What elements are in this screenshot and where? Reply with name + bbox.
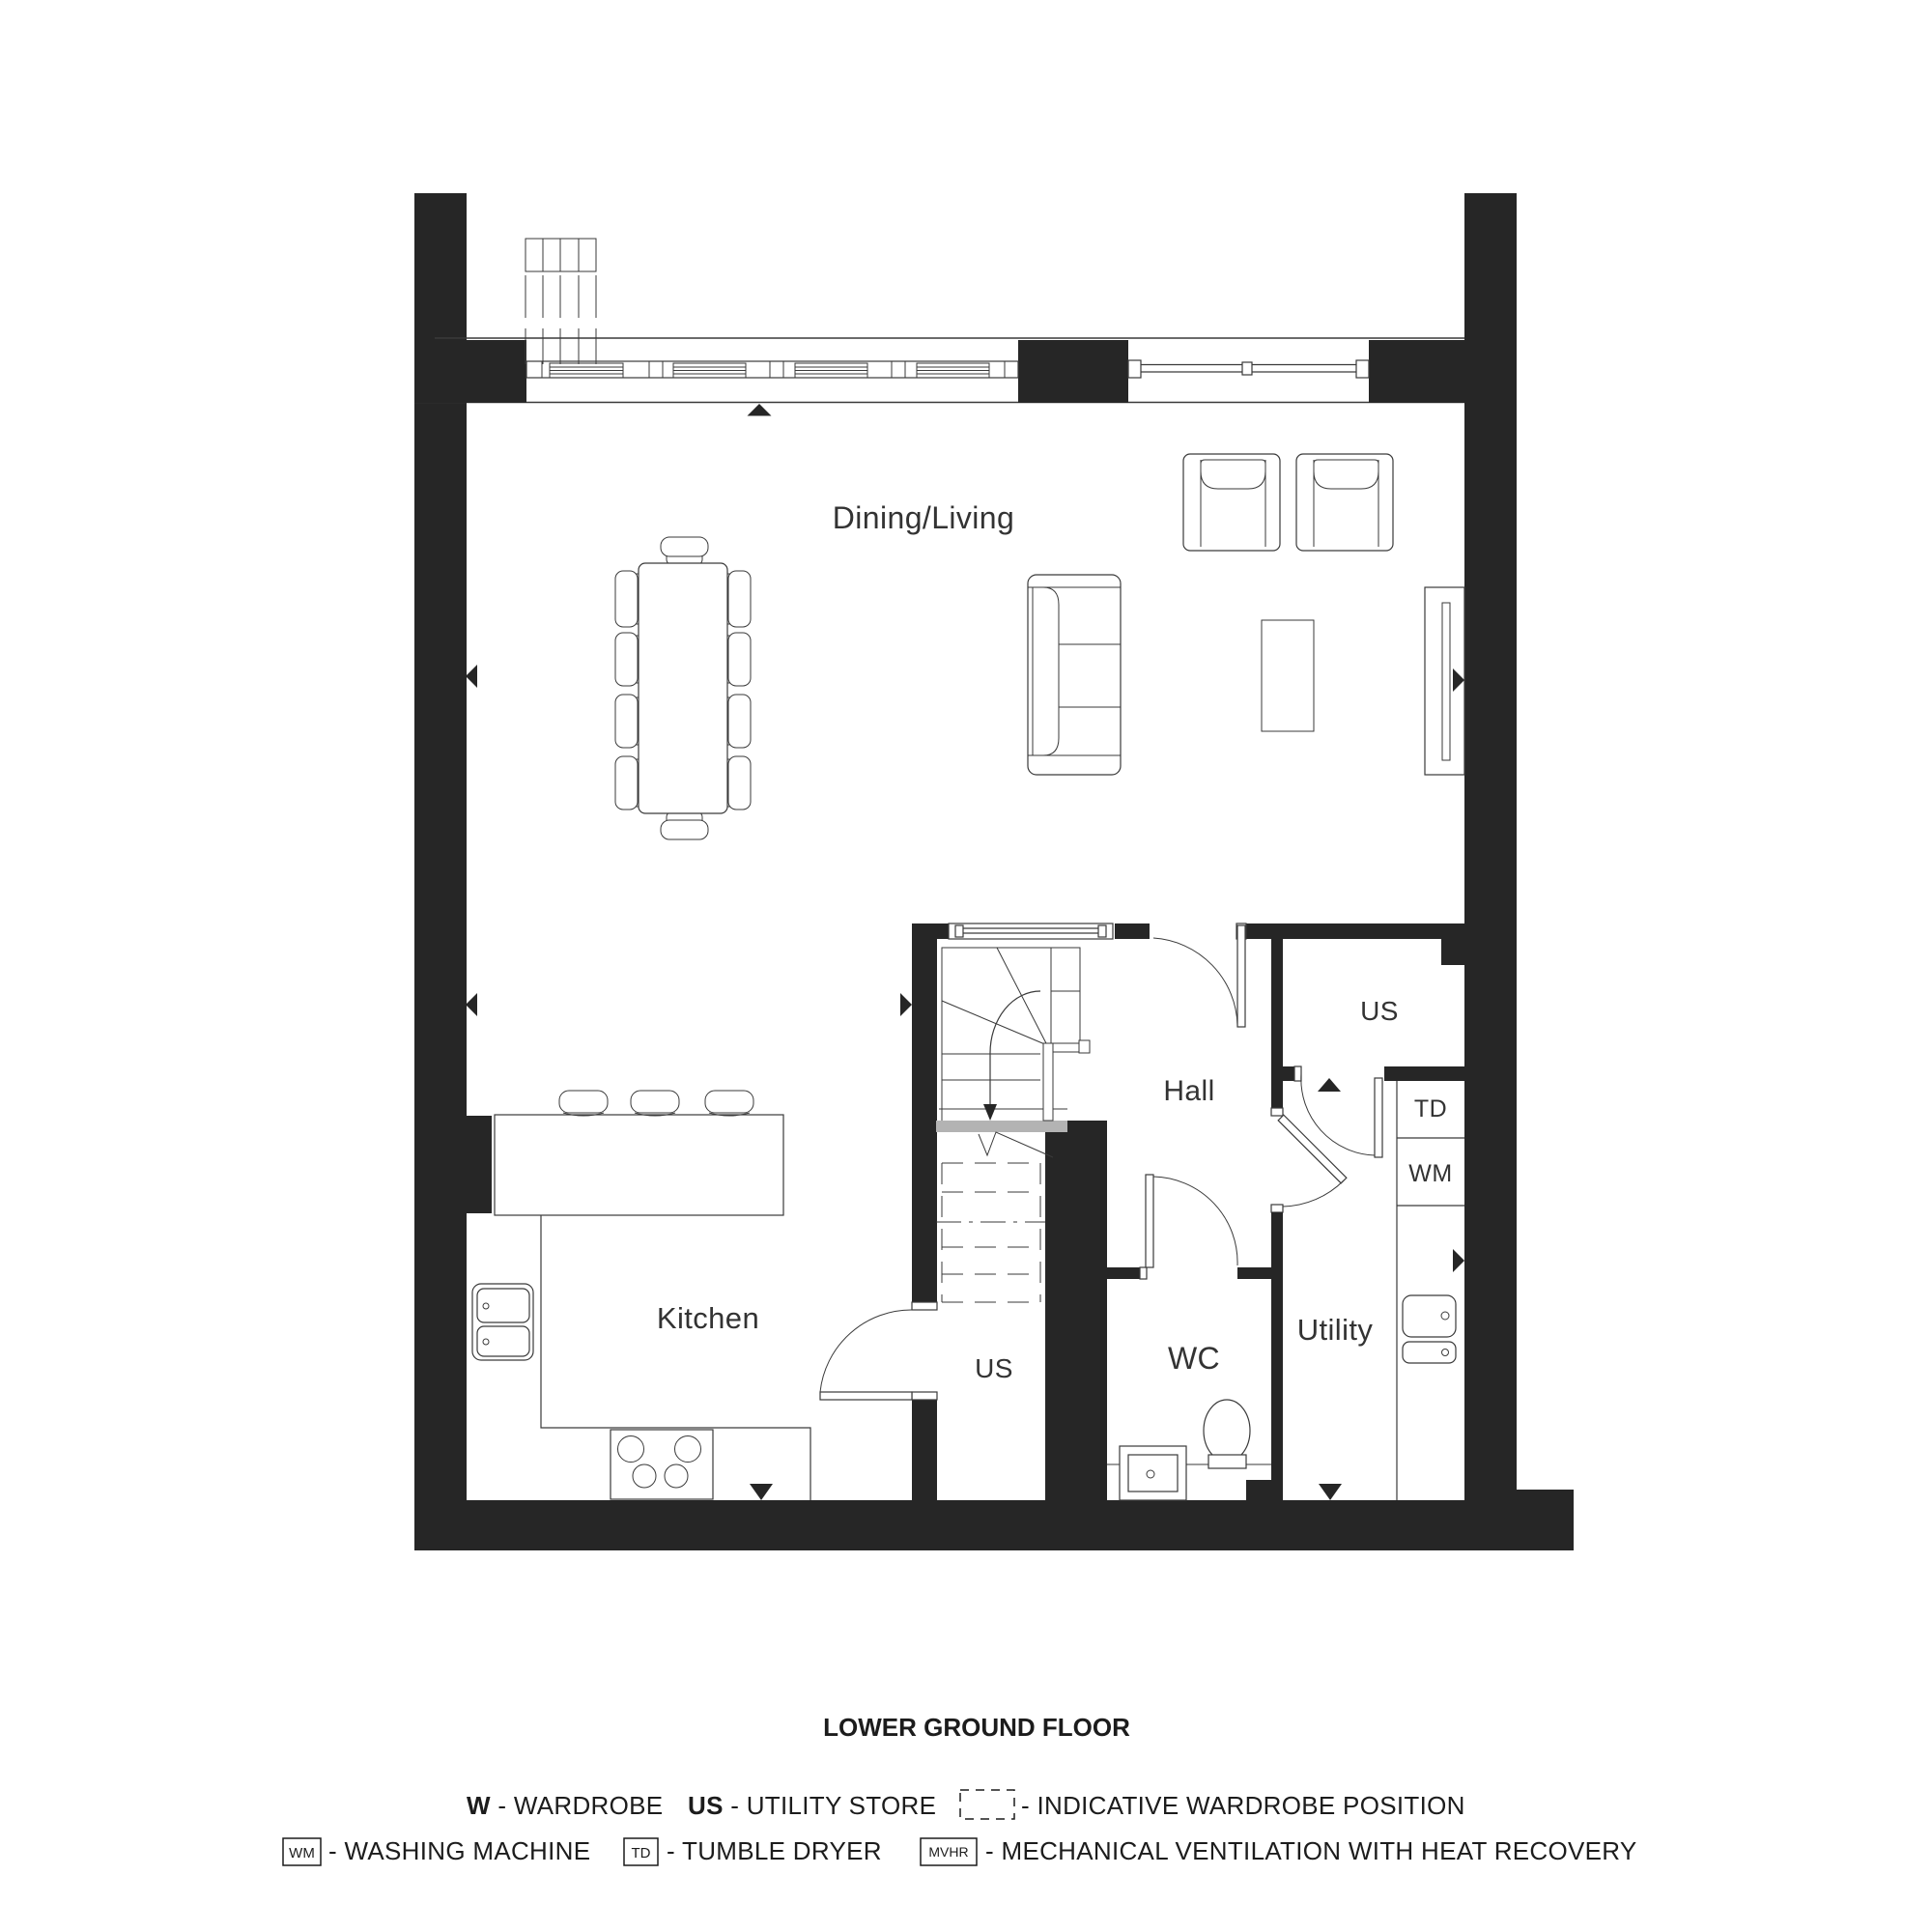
svg-text:WM: WM	[1408, 1160, 1452, 1187]
svg-text:- MECHANICAL VENTILATION WITH: - MECHANICAL VENTILATION WITH HEAT RECOV…	[985, 1836, 1637, 1865]
svg-text:MVHR: MVHR	[928, 1844, 968, 1860]
svg-text:- WASHING MACHINE: - WASHING MACHINE	[328, 1836, 590, 1865]
svg-text:Utility: Utility	[1297, 1313, 1374, 1347]
svg-text:LOWER GROUND FLOOR: LOWER GROUND FLOOR	[823, 1713, 1130, 1742]
svg-text:US: US	[975, 1353, 1013, 1383]
svg-text:WC: WC	[1168, 1341, 1220, 1376]
svg-text:- TUMBLE DRYER: - TUMBLE DRYER	[667, 1836, 882, 1865]
svg-text:US: US	[1360, 996, 1399, 1026]
svg-text:WM: WM	[289, 1845, 315, 1861]
svg-text:TD: TD	[632, 1845, 651, 1861]
svg-text:Dining/Living: Dining/Living	[833, 500, 1014, 535]
svg-text:Hall: Hall	[1163, 1075, 1214, 1107]
svg-text:Kitchen: Kitchen	[657, 1301, 759, 1335]
svg-text:US - UTILITY STORE: US - UTILITY STORE	[688, 1791, 936, 1820]
svg-text:W - WARDROBE: W - WARDROBE	[467, 1791, 663, 1820]
svg-text:TD: TD	[1414, 1095, 1447, 1122]
svg-text:- INDICATIVE WARDROBE POSITION: - INDICATIVE WARDROBE POSITION	[1021, 1791, 1465, 1820]
